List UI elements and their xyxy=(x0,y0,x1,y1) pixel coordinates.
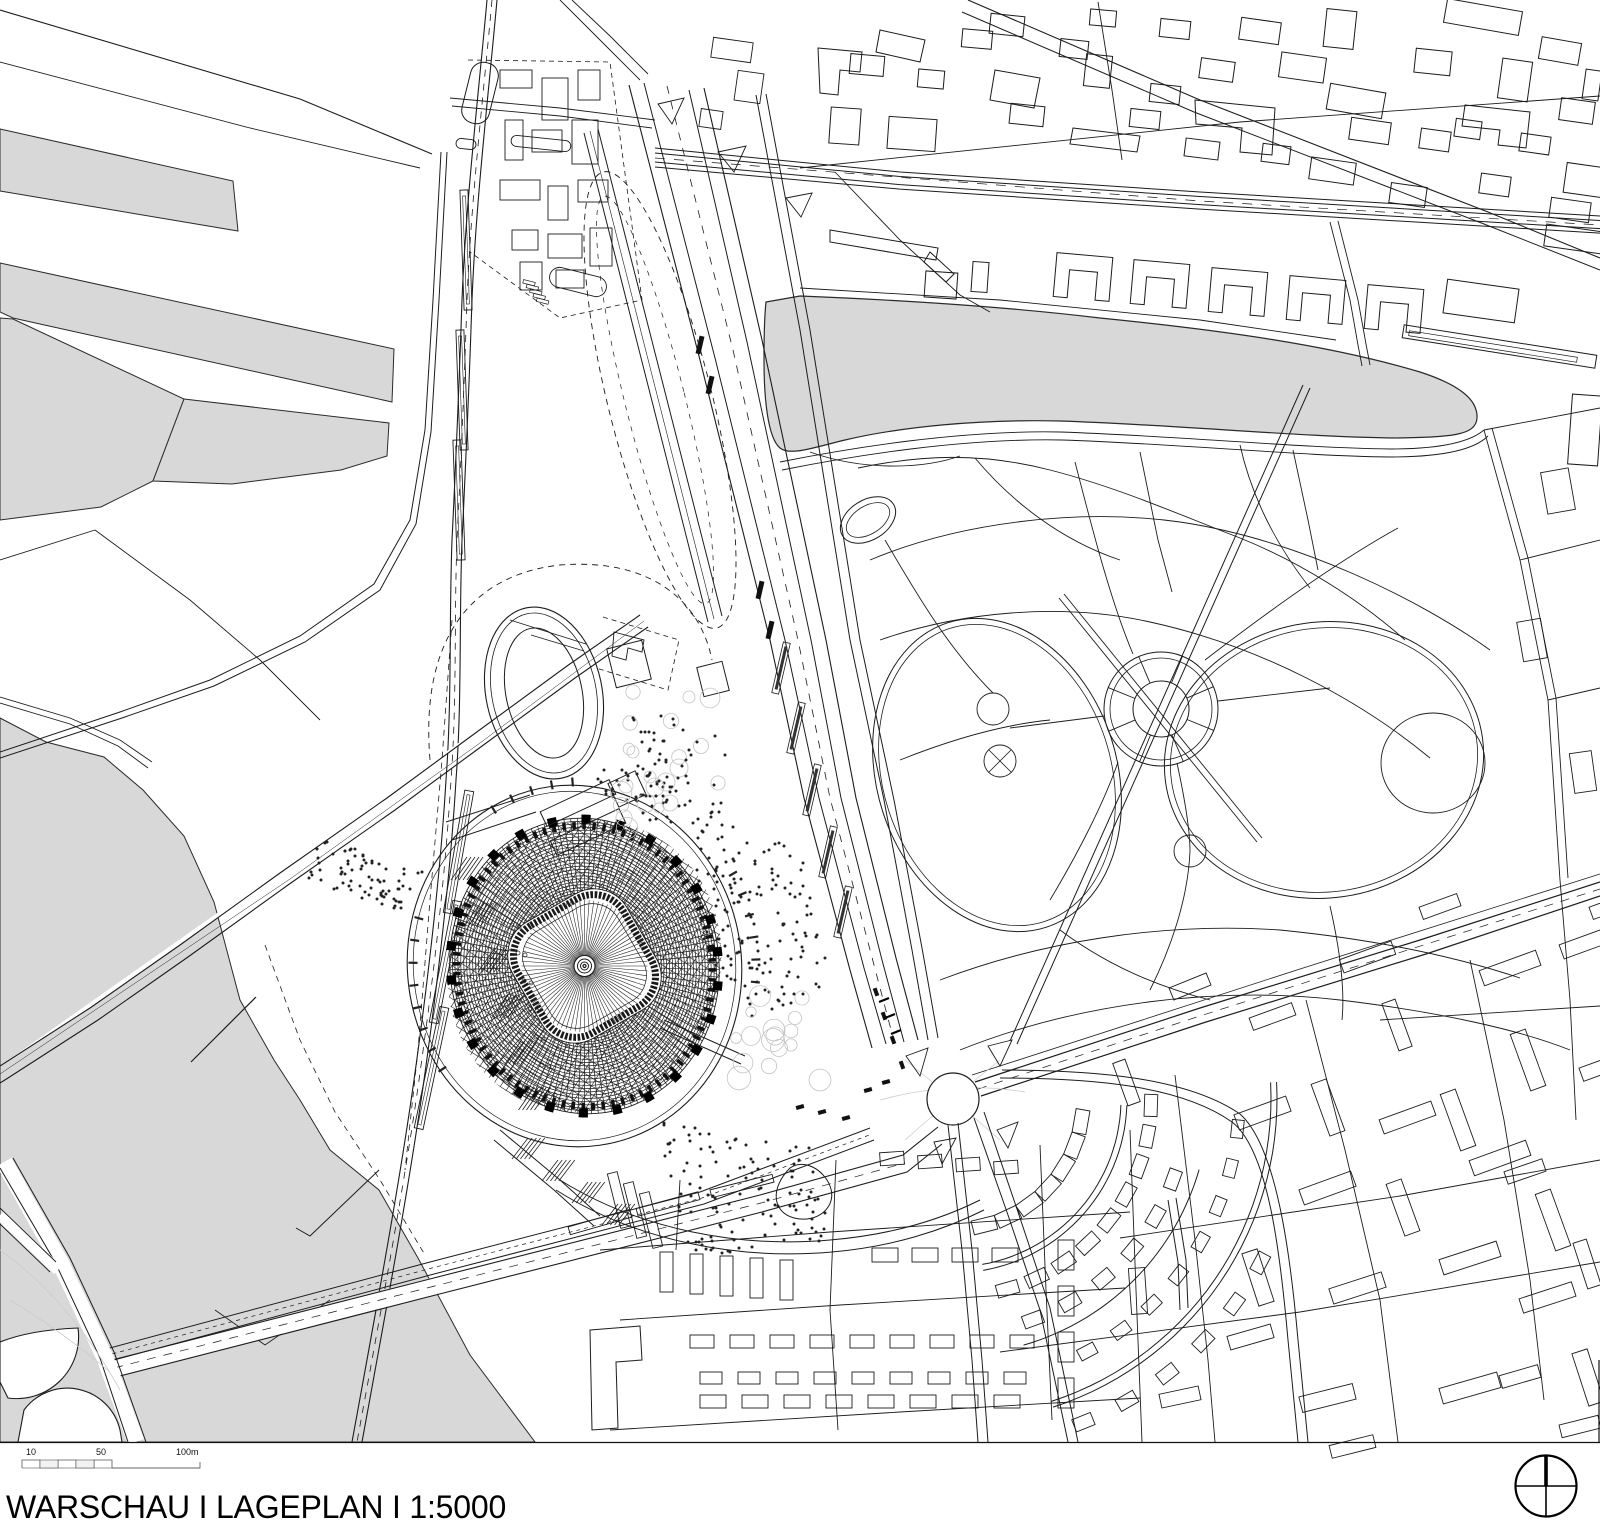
svg-text:10: 10 xyxy=(26,1447,36,1457)
svg-text:50: 50 xyxy=(96,1447,106,1457)
svg-text:100m: 100m xyxy=(176,1447,199,1457)
svg-text:WARSCHAU I LAGEPLAN I 1:5000: WARSCHAU I LAGEPLAN I 1:5000 xyxy=(6,1489,506,1525)
